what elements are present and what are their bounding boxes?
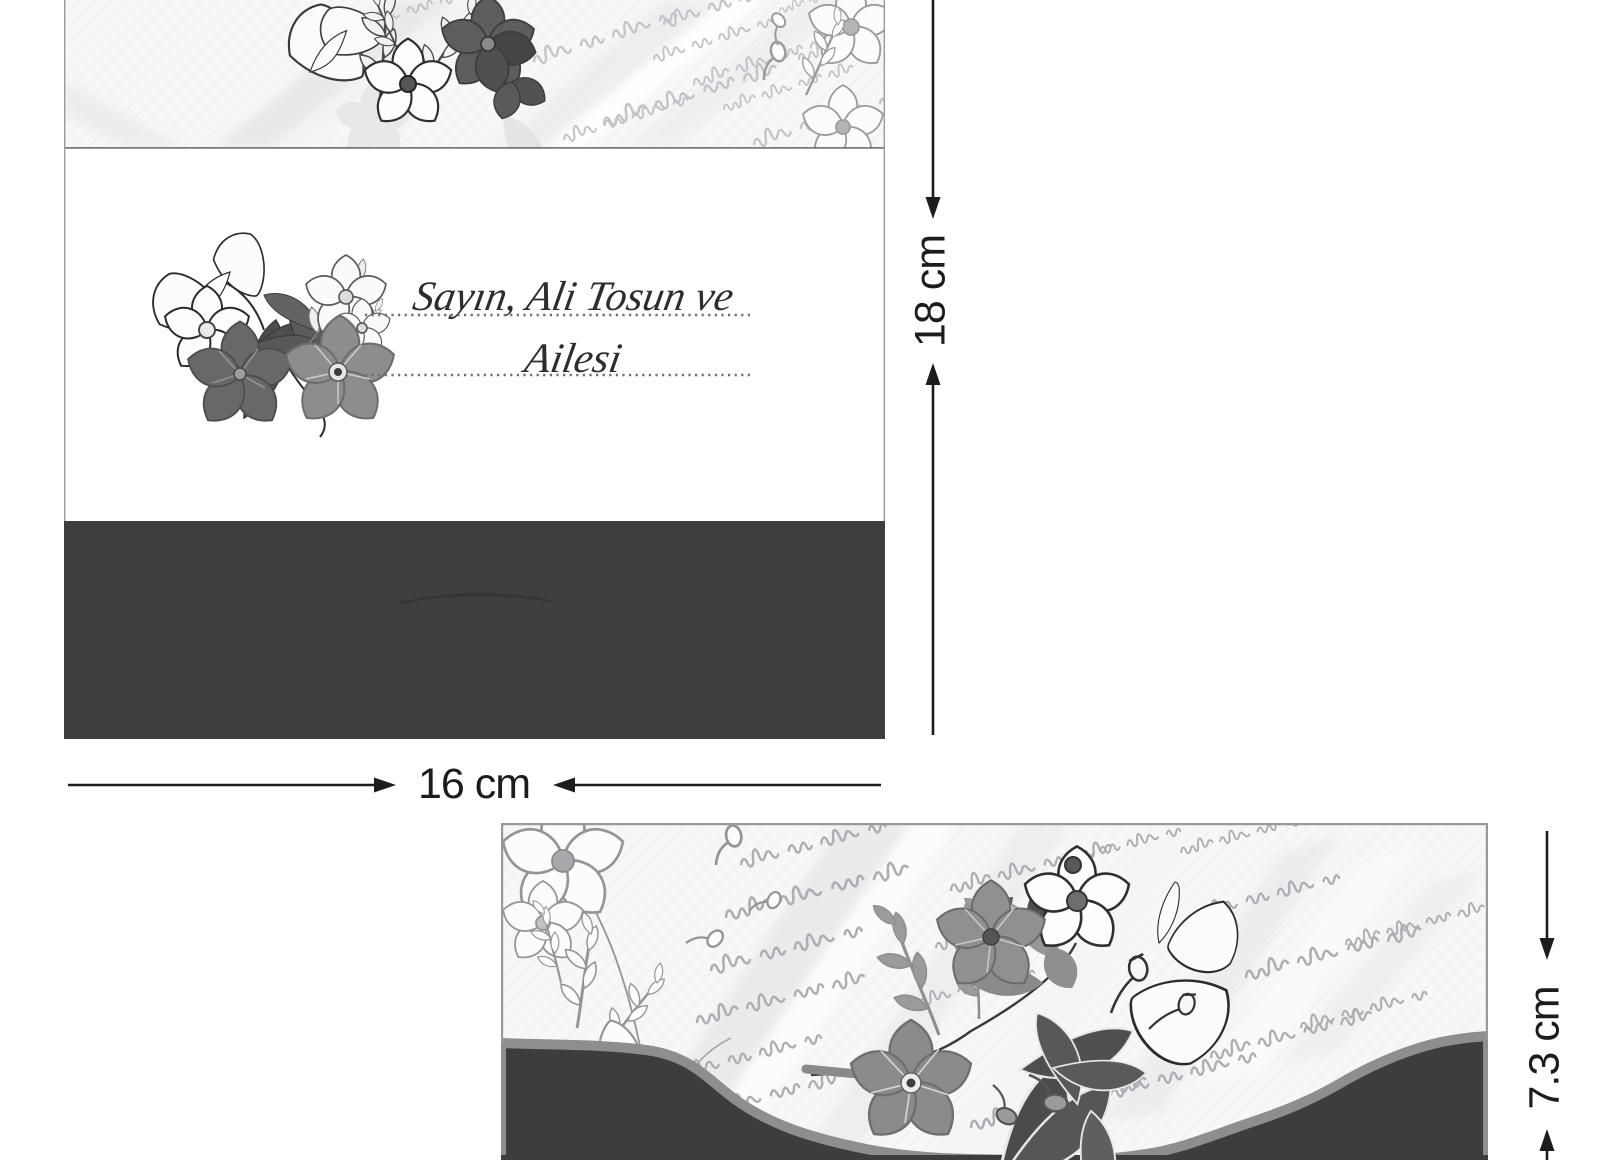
svg-text:16 cm: 16 cm [418, 760, 530, 808]
svg-text:7.3 cm: 7.3 cm [1520, 986, 1568, 1109]
svg-text:18 cm: 18 cm [906, 235, 954, 347]
svg-text:Sayın, Ali Tosun ve: Sayın, Ali Tosun ve [409, 273, 737, 320]
